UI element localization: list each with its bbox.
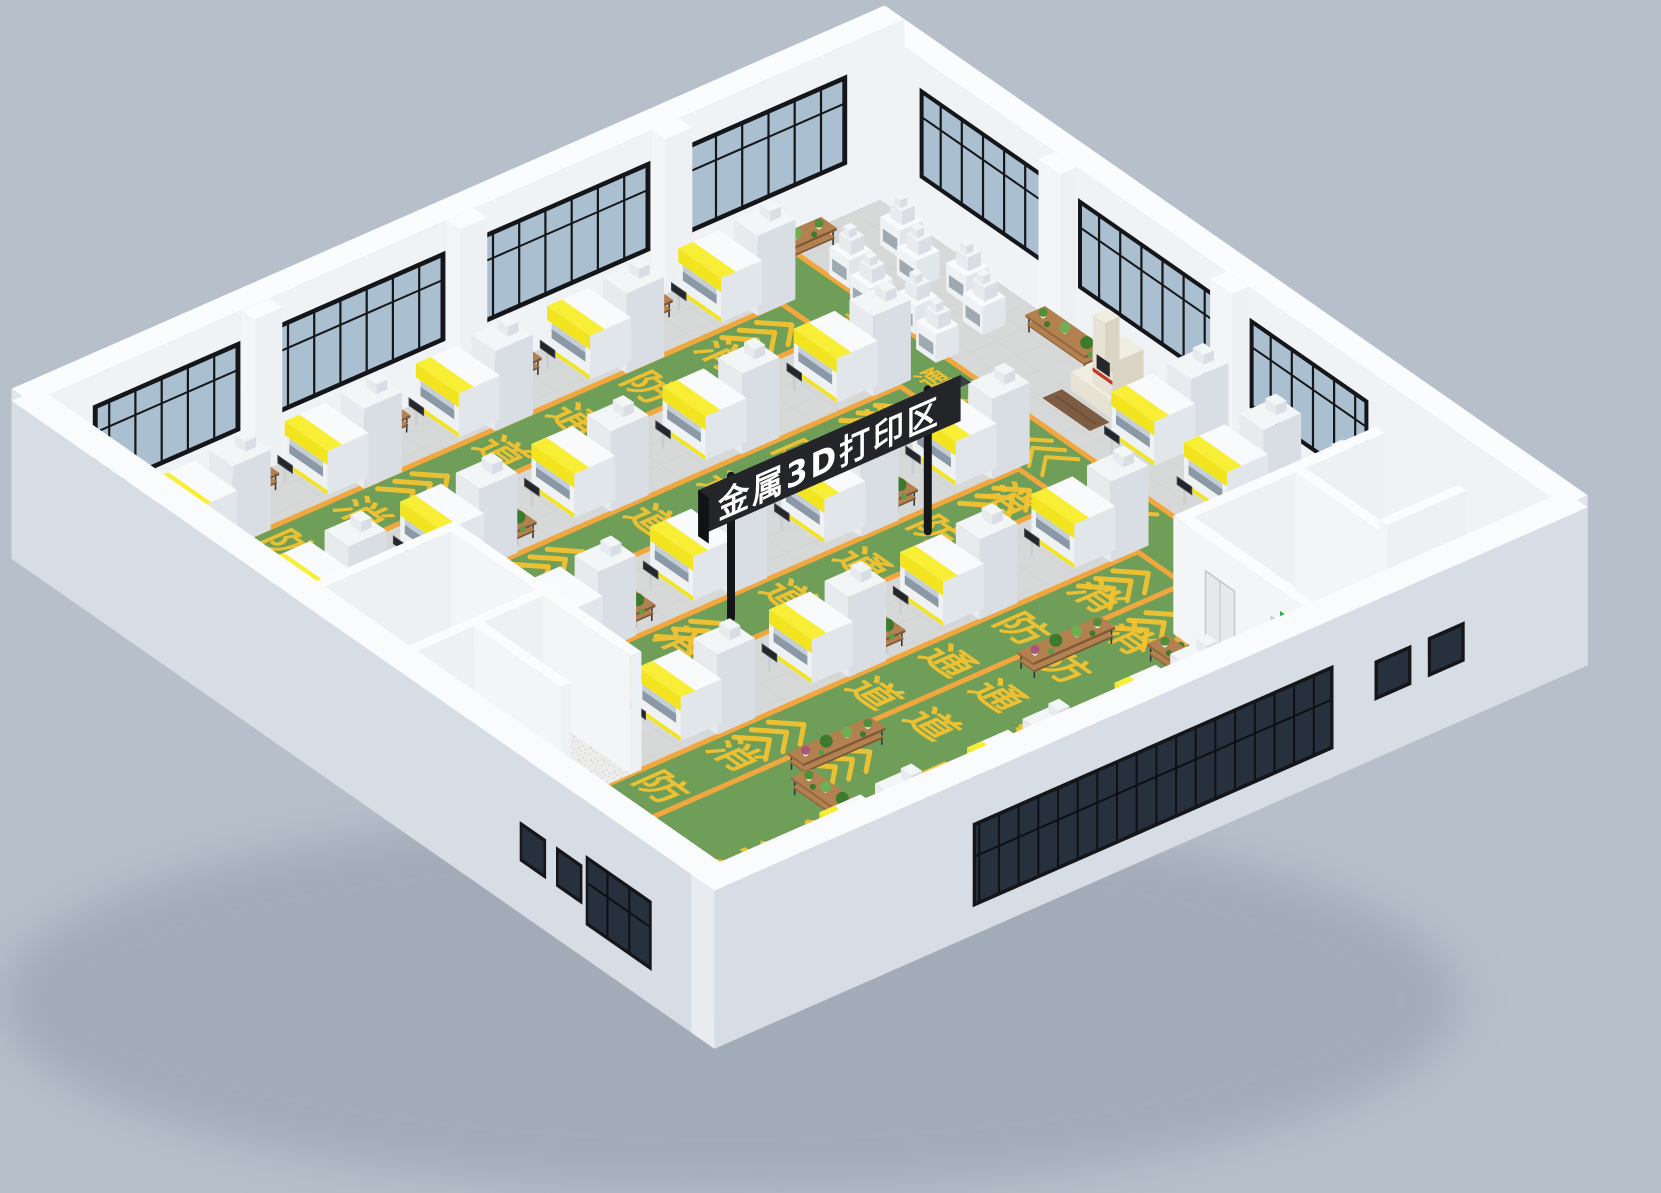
printer-cabinet-side	[873, 300, 911, 397]
printer-cabinet-side	[1111, 466, 1149, 563]
printer-cabinet-side	[742, 358, 780, 455]
potted-plant	[860, 731, 866, 737]
potted-plant	[1089, 630, 1095, 636]
potted-plant	[901, 493, 907, 499]
potted-plant	[810, 784, 816, 790]
potted-plant	[889, 634, 895, 640]
potted-plant	[1160, 637, 1169, 646]
wall-south-east-front	[691, 875, 714, 1049]
sign-beam-end	[698, 490, 709, 543]
printer-cabinet-side	[758, 219, 796, 316]
potted-plant	[818, 749, 824, 755]
potted-plant	[1080, 336, 1093, 349]
printer-cabinet-side	[495, 335, 533, 432]
potted-plant	[1048, 649, 1054, 655]
scene-canvas: 消防通道消防通消防通道消防通消防通道消防消防通道消防通消防通道消防通道消防通道 …	[0, 0, 1661, 1193]
potted-plant	[1071, 626, 1082, 637]
potted-plant	[1039, 308, 1048, 317]
printer-cabinet-side	[980, 523, 1018, 620]
printer-cabinet-side	[992, 383, 1030, 480]
potted-plant	[815, 219, 824, 228]
printer-cabinet-side	[364, 392, 402, 489]
room-wall-side	[631, 652, 642, 775]
potted-plant	[842, 727, 853, 738]
printer-cabinet-side	[848, 581, 886, 678]
window-pillar-side	[1060, 167, 1076, 344]
potted-plant	[1031, 645, 1040, 654]
potted-plant	[804, 771, 813, 780]
potted-plant	[639, 609, 645, 615]
potted-plant	[1049, 634, 1062, 647]
printer-cabinet-side	[611, 415, 649, 512]
potted-plant	[863, 718, 872, 727]
factory-floorplan-render: 消防通道消防通消防通道消防通消防通道消防消防通道消防通消防通道消防通道消防通道 …	[0, 0, 1661, 1193]
potted-plant	[1059, 322, 1070, 333]
potted-plant	[811, 231, 817, 237]
potted-plant	[1044, 321, 1050, 327]
potted-plant	[820, 781, 831, 792]
potted-plant	[801, 746, 810, 755]
potted-plant	[1093, 618, 1102, 627]
printer-cabinet-side	[627, 277, 665, 374]
room-wall-front	[1173, 516, 1182, 640]
potted-plant	[820, 735, 833, 748]
printer-cabinet-side	[717, 638, 755, 735]
potted-plant	[520, 526, 526, 532]
